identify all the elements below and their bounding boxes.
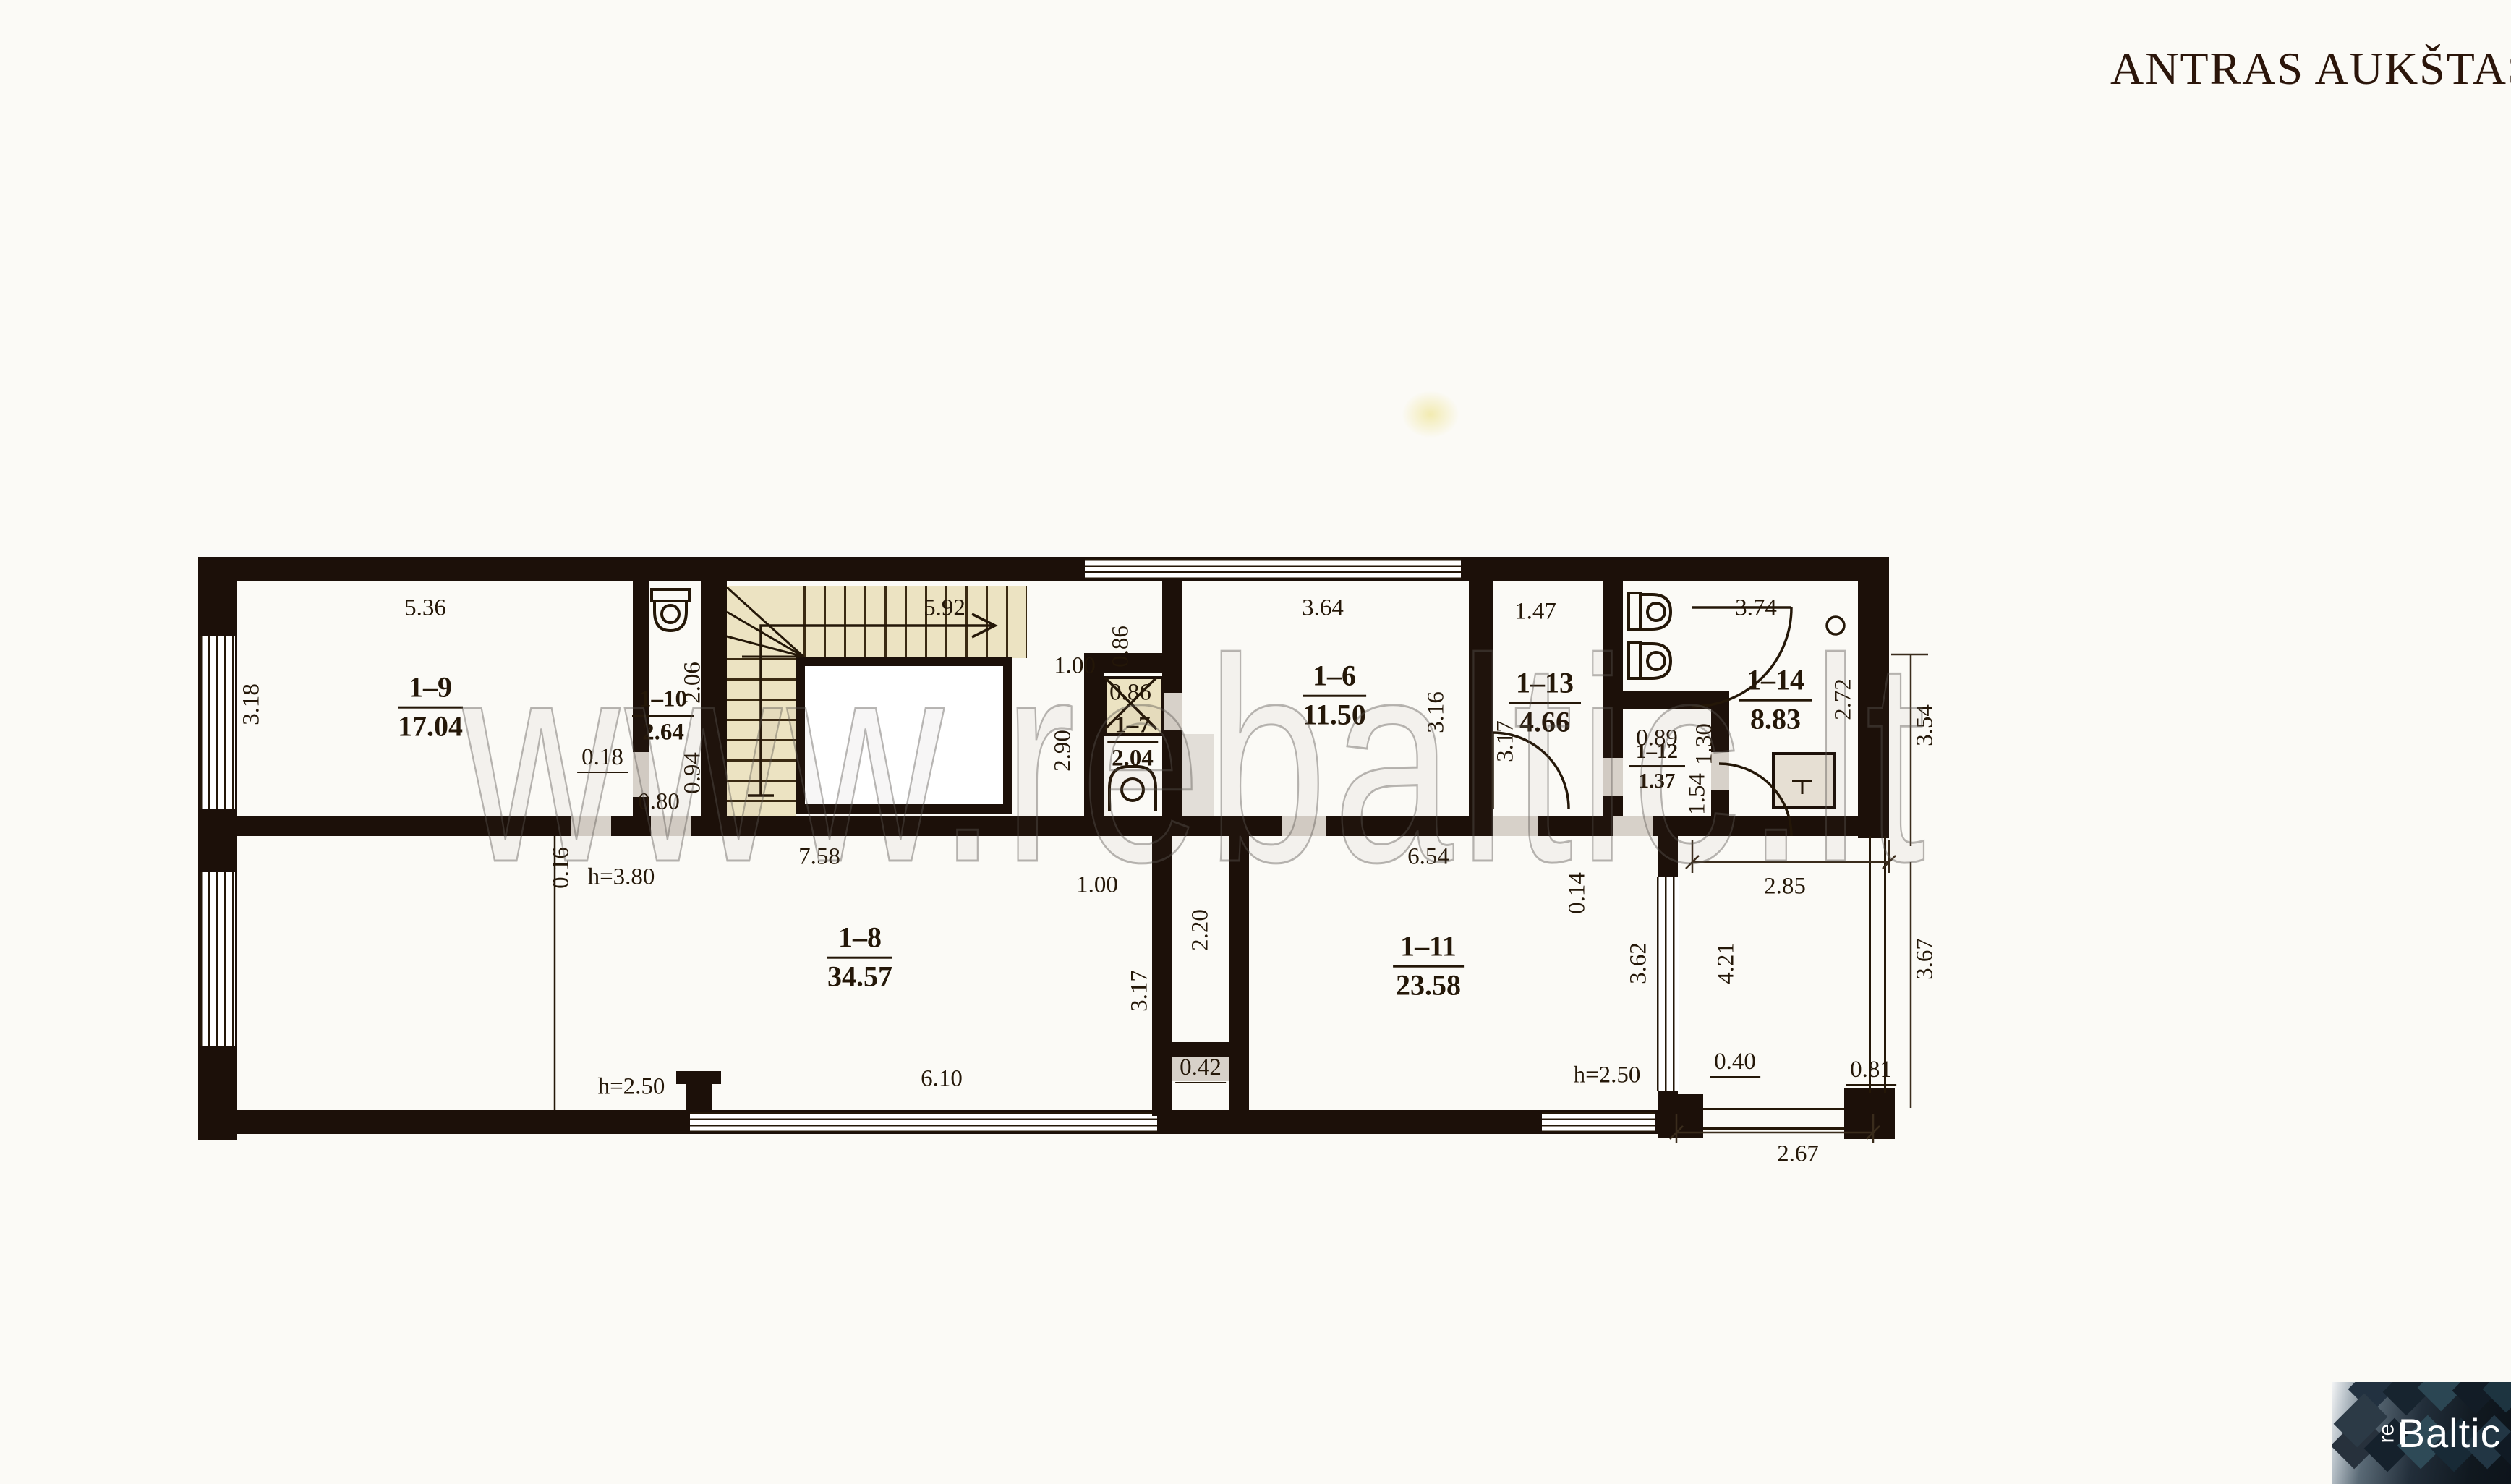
room-label-1-13: 1–134.66 <box>1509 668 1581 739</box>
dim-label: 3.64 <box>1302 595 1344 622</box>
room-label-1-7: 1–72.04 <box>1107 712 1158 772</box>
dim-label: 4.21 <box>1713 942 1740 984</box>
dim-label: 1.30 <box>1692 723 1718 765</box>
room-label-1-11: 1–1123.58 <box>1393 931 1464 1002</box>
dim-label: 5.36 <box>404 595 446 622</box>
dim-label: 3.16 <box>1423 691 1450 733</box>
dim-label: 3.17 <box>1127 970 1154 1012</box>
room-label-1-9: 1–917.04 <box>398 672 463 743</box>
dim-label: 7.58 <box>798 844 840 871</box>
dim-label: 2.20 <box>1188 909 1214 951</box>
dim-label: 0.40 <box>1710 1049 1760 1078</box>
dim-label: 2.72 <box>1830 678 1857 720</box>
dim-label: 0.86 <box>1108 626 1135 668</box>
dim-label: 0.86 <box>1109 680 1151 707</box>
room-label-1-8: 1–834.57 <box>827 922 892 994</box>
dim-label: 2.85 <box>1764 874 1806 900</box>
dim-label: 3.67 <box>1912 938 1939 980</box>
dim-label: 0.16 <box>548 847 575 889</box>
dim-label: 0.18 <box>577 744 628 773</box>
dim-label: h=2.50 <box>1574 1062 1641 1089</box>
dim-label: 0.81 <box>1846 1057 1896 1086</box>
dim-label: 3.74 <box>1735 595 1777 622</box>
dim-label: 2.06 <box>680 662 707 704</box>
dim-label: 1.00 <box>1054 653 1096 680</box>
agency-logo: re Baltic <box>2332 1382 2511 1484</box>
logo-re-label: re <box>2374 1422 2402 1444</box>
room-label-1-14: 1–148.83 <box>1739 665 1812 736</box>
dim-label: 1.47 <box>1514 599 1556 626</box>
dim-label: h=3.80 <box>588 864 655 891</box>
logo-text: re Baltic <box>2377 1382 2511 1484</box>
dim-label: 0.42 <box>1175 1054 1226 1083</box>
dim-label: 0.80 <box>638 789 680 816</box>
dim-label: 3.62 <box>1626 942 1653 984</box>
dim-label: 3.54 <box>1912 704 1939 746</box>
dim-label: 3.17 <box>1493 720 1519 762</box>
room-label-1-6: 1–611.50 <box>1303 660 1366 732</box>
dim-label: 6.54 <box>1407 844 1449 871</box>
dim-label: 0.89 <box>1636 725 1678 752</box>
dim-label: 0.14 <box>1564 872 1591 914</box>
dim-label: 1.00 <box>1076 872 1118 899</box>
dim-label: 3.18 <box>239 683 265 725</box>
dim-label: 1.54 <box>1684 773 1711 815</box>
dim-label: 2.67 <box>1777 1141 1819 1168</box>
dim-label: h=2.50 <box>598 1074 665 1101</box>
floor-plan-canvas: ANTRAS AUKŠTAS <box>0 0 2511 1484</box>
dim-label: 0.94 <box>680 752 707 794</box>
dim-label: 5.92 <box>924 595 965 622</box>
logo-name-label: Baltic <box>2398 1410 2502 1457</box>
dim-label: 2.90 <box>1050 730 1077 772</box>
dim-label: 6.10 <box>921 1066 963 1093</box>
labels-layer: 1–917.041–102.641–72.041–611.501–134.661… <box>0 0 2511 1484</box>
